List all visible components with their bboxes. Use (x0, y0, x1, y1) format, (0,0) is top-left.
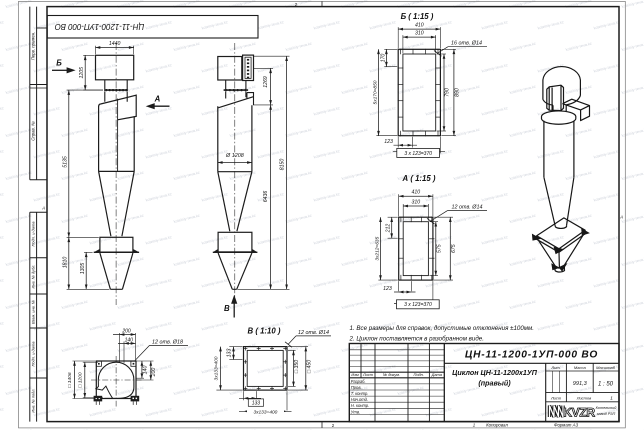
svg-text:1205: 1205 (79, 67, 85, 79)
svg-text:3х133=400: 3х133=400 (213, 356, 219, 380)
svg-text:Инв. № дубл.: Инв. № дубл. (30, 265, 35, 289)
svg-text:12 отв. Ø14: 12 отв. Ø14 (298, 330, 329, 336)
svg-text:1 : 50: 1 : 50 (598, 382, 614, 388)
svg-text:Утв.: Утв. (351, 409, 360, 414)
svg-text:Подп. и дата: Подп. и дата (30, 341, 35, 367)
svg-text:А: А (41, 206, 45, 211)
svg-text:1440: 1440 (109, 41, 121, 47)
svg-text:Перв. примен.: Перв. примен. (30, 32, 35, 61)
svg-text:А ( 1:15 ): А ( 1:15 ) (402, 174, 436, 183)
svg-text:310: 310 (411, 199, 420, 205)
svg-text:Формат А3: Формат А3 (554, 422, 579, 427)
svg-text:3 х 123=370: 3 х 123=370 (404, 302, 432, 308)
svg-text:1. Все размеры для справок, до: 1. Все размеры для справок, допустимые о… (350, 325, 535, 332)
svg-text:1305: 1305 (80, 263, 86, 275)
svg-text:ЦН-11-1200-1УП-000 ВО: ЦН-11-1200-1УП-000 ВО (465, 349, 598, 360)
svg-text:Нач.отд.: Нач.отд. (351, 397, 368, 402)
svg-text:Разраб.: Разраб. (351, 379, 366, 384)
svg-text:200: 200 (121, 328, 131, 334)
svg-text:Взам. инв. №: Взам. инв. № (30, 299, 35, 324)
svg-text:ЦН-11-1200-1УП-000 ВО: ЦН-11-1200-1УП-000 ВО (55, 22, 144, 31)
svg-text:212: 212 (386, 224, 392, 234)
svg-text:2. Циклон поставляется в разоб: 2. Циклон поставляется в разобранном вид… (349, 335, 484, 342)
svg-text:1810: 1810 (63, 257, 69, 269)
svg-text:Листов: Листов (576, 396, 592, 401)
svg-text:KVZR: KVZR (563, 405, 595, 419)
svg-text:790: 790 (445, 88, 451, 97)
svg-text:6436: 6436 (263, 191, 269, 203)
svg-text:991,3: 991,3 (573, 381, 588, 387)
svg-text:5135: 5135 (63, 156, 69, 168)
svg-text:Т. контр.: Т. контр. (351, 391, 369, 396)
svg-text:140: 140 (125, 337, 134, 343)
svg-text:Б: Б (56, 58, 62, 67)
svg-text:Масштаб: Масштаб (596, 365, 615, 370)
svg-text:Изм: Изм (351, 372, 359, 377)
svg-text:Циклон ЦН-11-1200х1УП: Циклон ЦН-11-1200х1УП (452, 369, 538, 377)
svg-text:Дата: Дата (431, 372, 443, 377)
svg-text:575: 575 (436, 244, 442, 253)
svg-text:123: 123 (384, 139, 393, 145)
svg-text:12 отв. Ø18: 12 отв. Ø18 (152, 340, 183, 346)
svg-text:Справ. №: Справ. № (30, 121, 35, 141)
svg-text:А: А (619, 215, 623, 220)
svg-text:123: 123 (383, 286, 392, 292)
svg-text:Ø 1208: Ø 1208 (225, 153, 244, 159)
svg-text:Лист: Лист (550, 396, 562, 401)
svg-text:16 отв. Ø14: 16 отв. Ø14 (451, 41, 482, 47)
svg-text:3х212=635: 3х212=635 (375, 236, 381, 260)
svg-text:Лит.: Лит. (550, 365, 560, 370)
svg-text:310: 310 (415, 31, 424, 37)
svg-text:1: 1 (610, 396, 613, 401)
svg-text:675: 675 (451, 244, 457, 253)
svg-text:□ 1200: □ 1200 (77, 372, 83, 387)
svg-text:200: 200 (151, 368, 157, 378)
svg-text:завод РЗП: завод РЗП (596, 412, 616, 416)
svg-text:№ докум.: № докум. (383, 372, 400, 377)
svg-text:А: А (154, 94, 161, 103)
svg-text:3 х 123=370: 3 х 123=370 (404, 151, 432, 157)
svg-text:Пров.: Пров. (351, 385, 362, 390)
svg-text:133: 133 (226, 349, 232, 358)
svg-text:140: 140 (142, 366, 148, 375)
svg-text:Копировал: Копировал (486, 422, 508, 427)
svg-text:Подп. и дата: Подп. и дата (30, 221, 35, 247)
svg-text:1269: 1269 (263, 76, 269, 88)
svg-text:410: 410 (411, 190, 420, 196)
svg-text:170: 170 (380, 54, 386, 63)
svg-text:□ 450: □ 450 (306, 360, 312, 373)
svg-text:890: 890 (454, 88, 460, 97)
svg-text:Котельный: Котельный (596, 406, 618, 410)
svg-text:В ( 1:10 ): В ( 1:10 ) (248, 327, 281, 336)
svg-text:3х133=400: 3х133=400 (253, 410, 277, 416)
svg-text:133: 133 (252, 401, 261, 407)
svg-text:Н. контр.: Н. контр. (351, 403, 369, 408)
svg-text:5х170=850: 5х170=850 (373, 80, 379, 104)
svg-text:□ 1406: □ 1406 (67, 372, 73, 387)
svg-text:8150: 8150 (280, 159, 286, 171)
svg-text:Подп.: Подп. (414, 372, 424, 377)
svg-text:В: В (224, 304, 230, 313)
svg-text:Б ( 1:15 ): Б ( 1:15 ) (401, 12, 434, 21)
svg-text:12 отв. Ø14: 12 отв. Ø14 (452, 205, 483, 211)
svg-text:410: 410 (415, 23, 424, 29)
svg-text:Масса: Масса (574, 365, 587, 370)
svg-text:□ 350: □ 350 (294, 360, 300, 373)
svg-text:Лист: Лист (362, 372, 374, 377)
svg-text:Инв. № подл.: Инв. № подл. (30, 388, 35, 412)
svg-text:(правый): (правый) (478, 380, 511, 388)
